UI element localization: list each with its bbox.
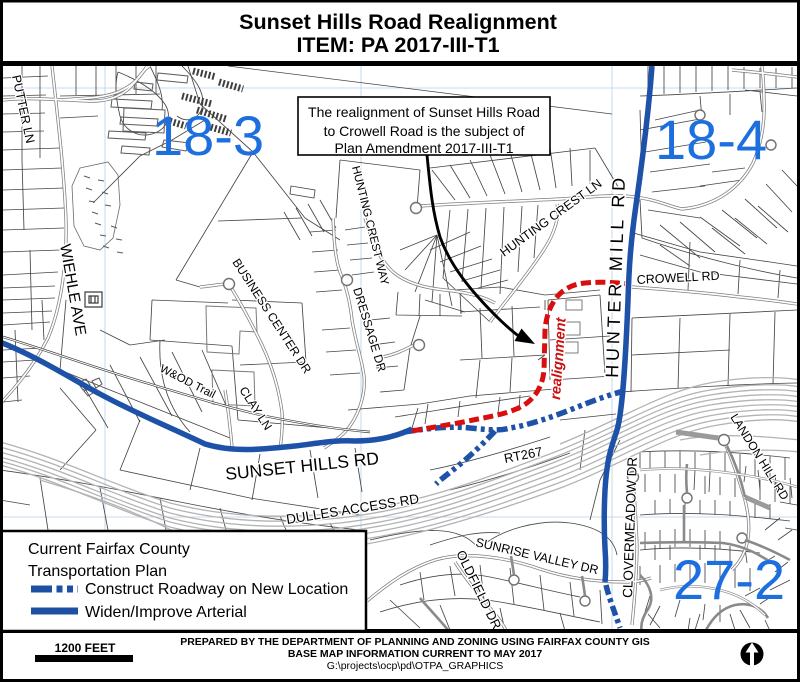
svg-text:Widen/Improve Arterial: Widen/Improve Arterial <box>85 604 247 621</box>
svg-text:Plan Amendment 2017-III-T1: Plan Amendment 2017-III-T1 <box>335 140 514 156</box>
svg-text:Transportation Plan: Transportation Plan <box>28 563 167 580</box>
svg-text:to Crowell Road is the subjec: to Crowell Road is the subject of <box>324 123 525 139</box>
svg-text:BASE MAP INFORMATION CURRENT T: BASE MAP INFORMATION CURRENT TO MAY 2017 <box>288 648 543 660</box>
svg-text:The realignment of Sunset Hill: The realignment of Sunset Hills Road <box>308 104 540 120</box>
svg-text:ITEM: PA 2017-III-T1: ITEM: PA 2017-III-T1 <box>296 33 499 57</box>
svg-text:Construct Roadway on New Locat: Construct Roadway on New Location <box>85 581 348 598</box>
svg-text:PREPARED BY THE DEPARTMENT OF: PREPARED BY THE DEPARTMENT OF PLANNING A… <box>180 636 650 648</box>
svg-text:Sunset Hills Road Realignment: Sunset Hills Road Realignment <box>239 10 557 34</box>
svg-text:27-2: 27-2 <box>673 548 785 611</box>
svg-text:18-4: 18-4 <box>655 108 767 171</box>
svg-text:Current Fairfax County: Current Fairfax County <box>28 541 190 558</box>
svg-text:G:\projects\ocp\pd\OTPA_GRAPHI: G:\projects\ocp\pd\OTPA_GRAPHICS <box>327 660 504 672</box>
svg-text:1200 FEET: 1200 FEET <box>55 641 116 655</box>
svg-text:18-3: 18-3 <box>152 104 264 167</box>
